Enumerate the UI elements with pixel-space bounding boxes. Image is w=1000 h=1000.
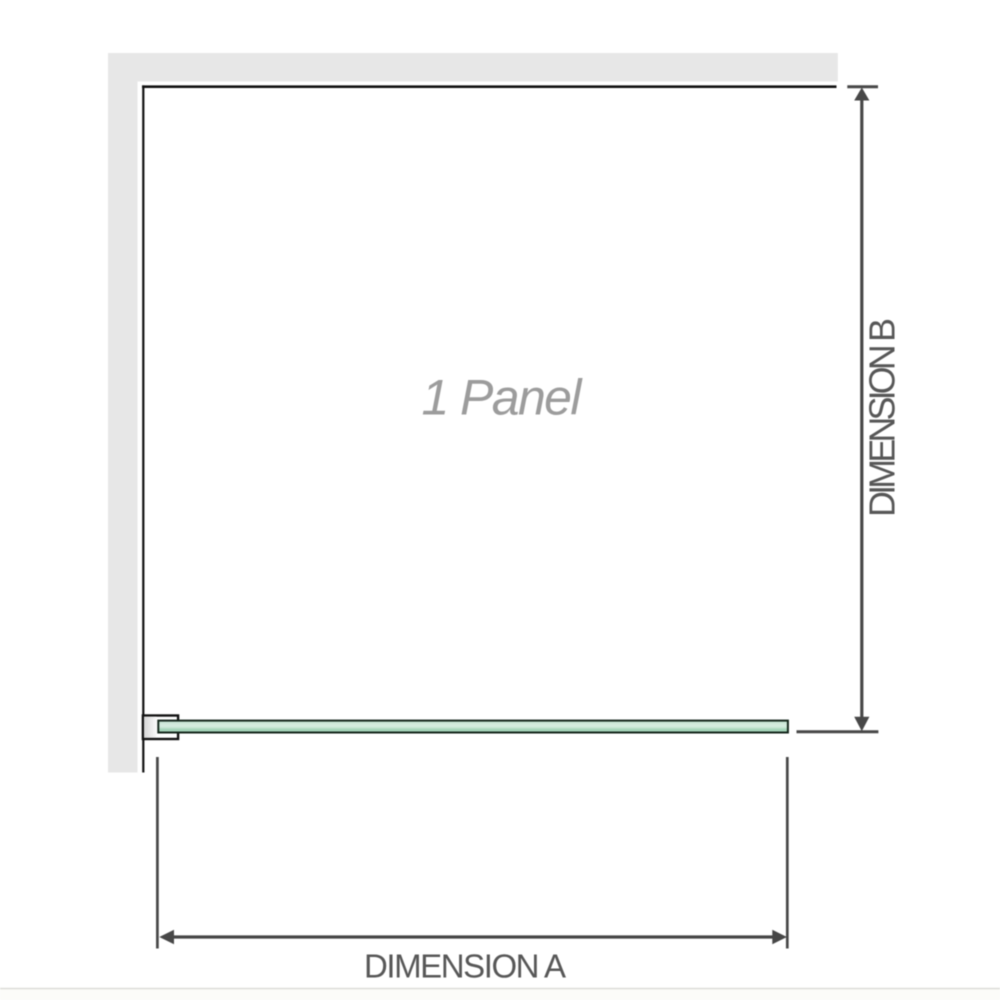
svg-text:1 Panel: 1 Panel [422, 369, 584, 425]
svg-text:DIMENSION B: DIMENSION B [862, 318, 903, 517]
svg-text:DIMENSION A: DIMENSION A [364, 948, 566, 985]
